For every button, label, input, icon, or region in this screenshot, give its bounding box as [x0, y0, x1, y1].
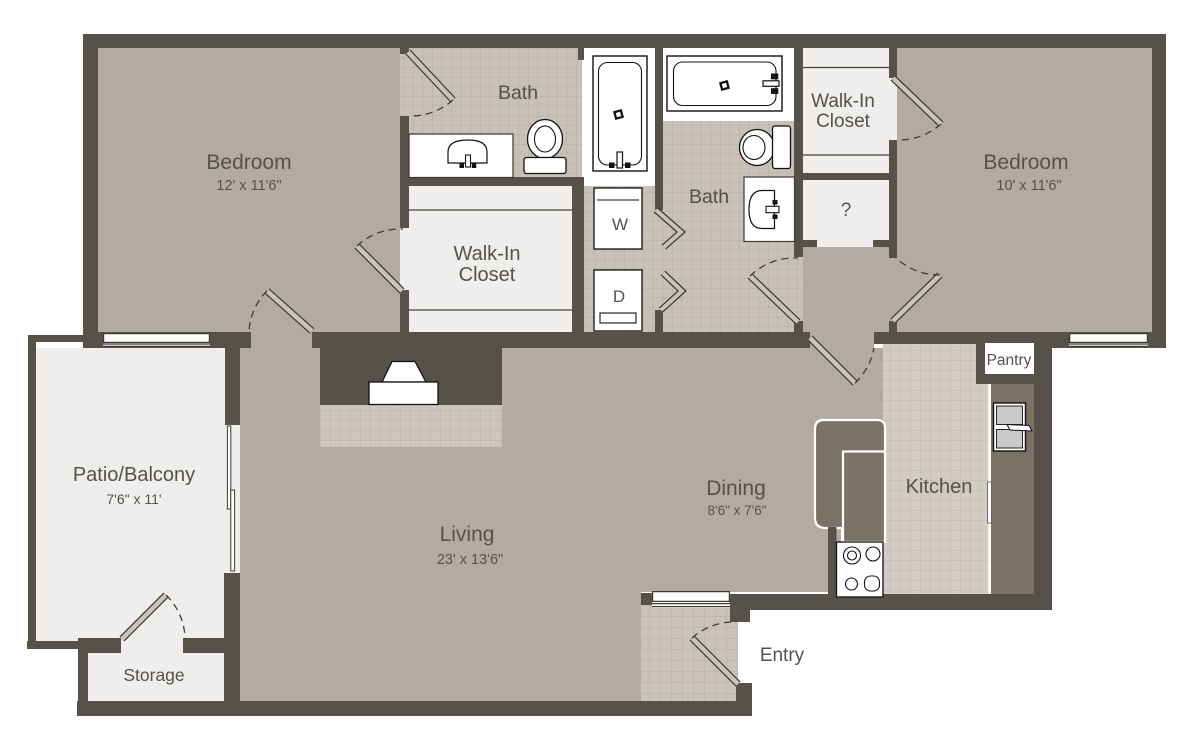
svg-text:?: ? — [841, 200, 852, 221]
svg-text:Closet: Closet — [459, 264, 516, 286]
svg-text:12' x 11'6": 12' x 11'6" — [216, 178, 281, 194]
svg-text:D: D — [613, 287, 625, 306]
svg-text:Bedroom: Bedroom — [983, 151, 1068, 174]
svg-text:Bedroom: Bedroom — [206, 151, 291, 174]
svg-text:Pantry: Pantry — [987, 352, 1032, 369]
svg-text:W: W — [612, 215, 628, 234]
svg-text:10' x 11'6": 10' x 11'6" — [996, 178, 1061, 194]
svg-text:Patio/Balcony: Patio/Balcony — [73, 464, 195, 486]
svg-text:Kitchen: Kitchen — [906, 476, 973, 498]
svg-text:Walk-In: Walk-In — [811, 91, 875, 112]
svg-text:Bath: Bath — [689, 186, 729, 208]
svg-text:Bath: Bath — [498, 82, 538, 104]
svg-text:Living: Living — [440, 523, 495, 546]
svg-text:Closet: Closet — [816, 111, 871, 132]
svg-text:23' x 13'6": 23' x 13'6" — [437, 552, 503, 568]
svg-text:8'6" x 7'6": 8'6" x 7'6" — [707, 503, 766, 518]
svg-text:7'6" x 11': 7'6" x 11' — [106, 491, 161, 507]
svg-text:Dining: Dining — [706, 477, 766, 500]
svg-text:Entry: Entry — [760, 645, 805, 666]
svg-text:Walk-In: Walk-In — [453, 243, 520, 265]
svg-text:Storage: Storage — [123, 665, 184, 685]
